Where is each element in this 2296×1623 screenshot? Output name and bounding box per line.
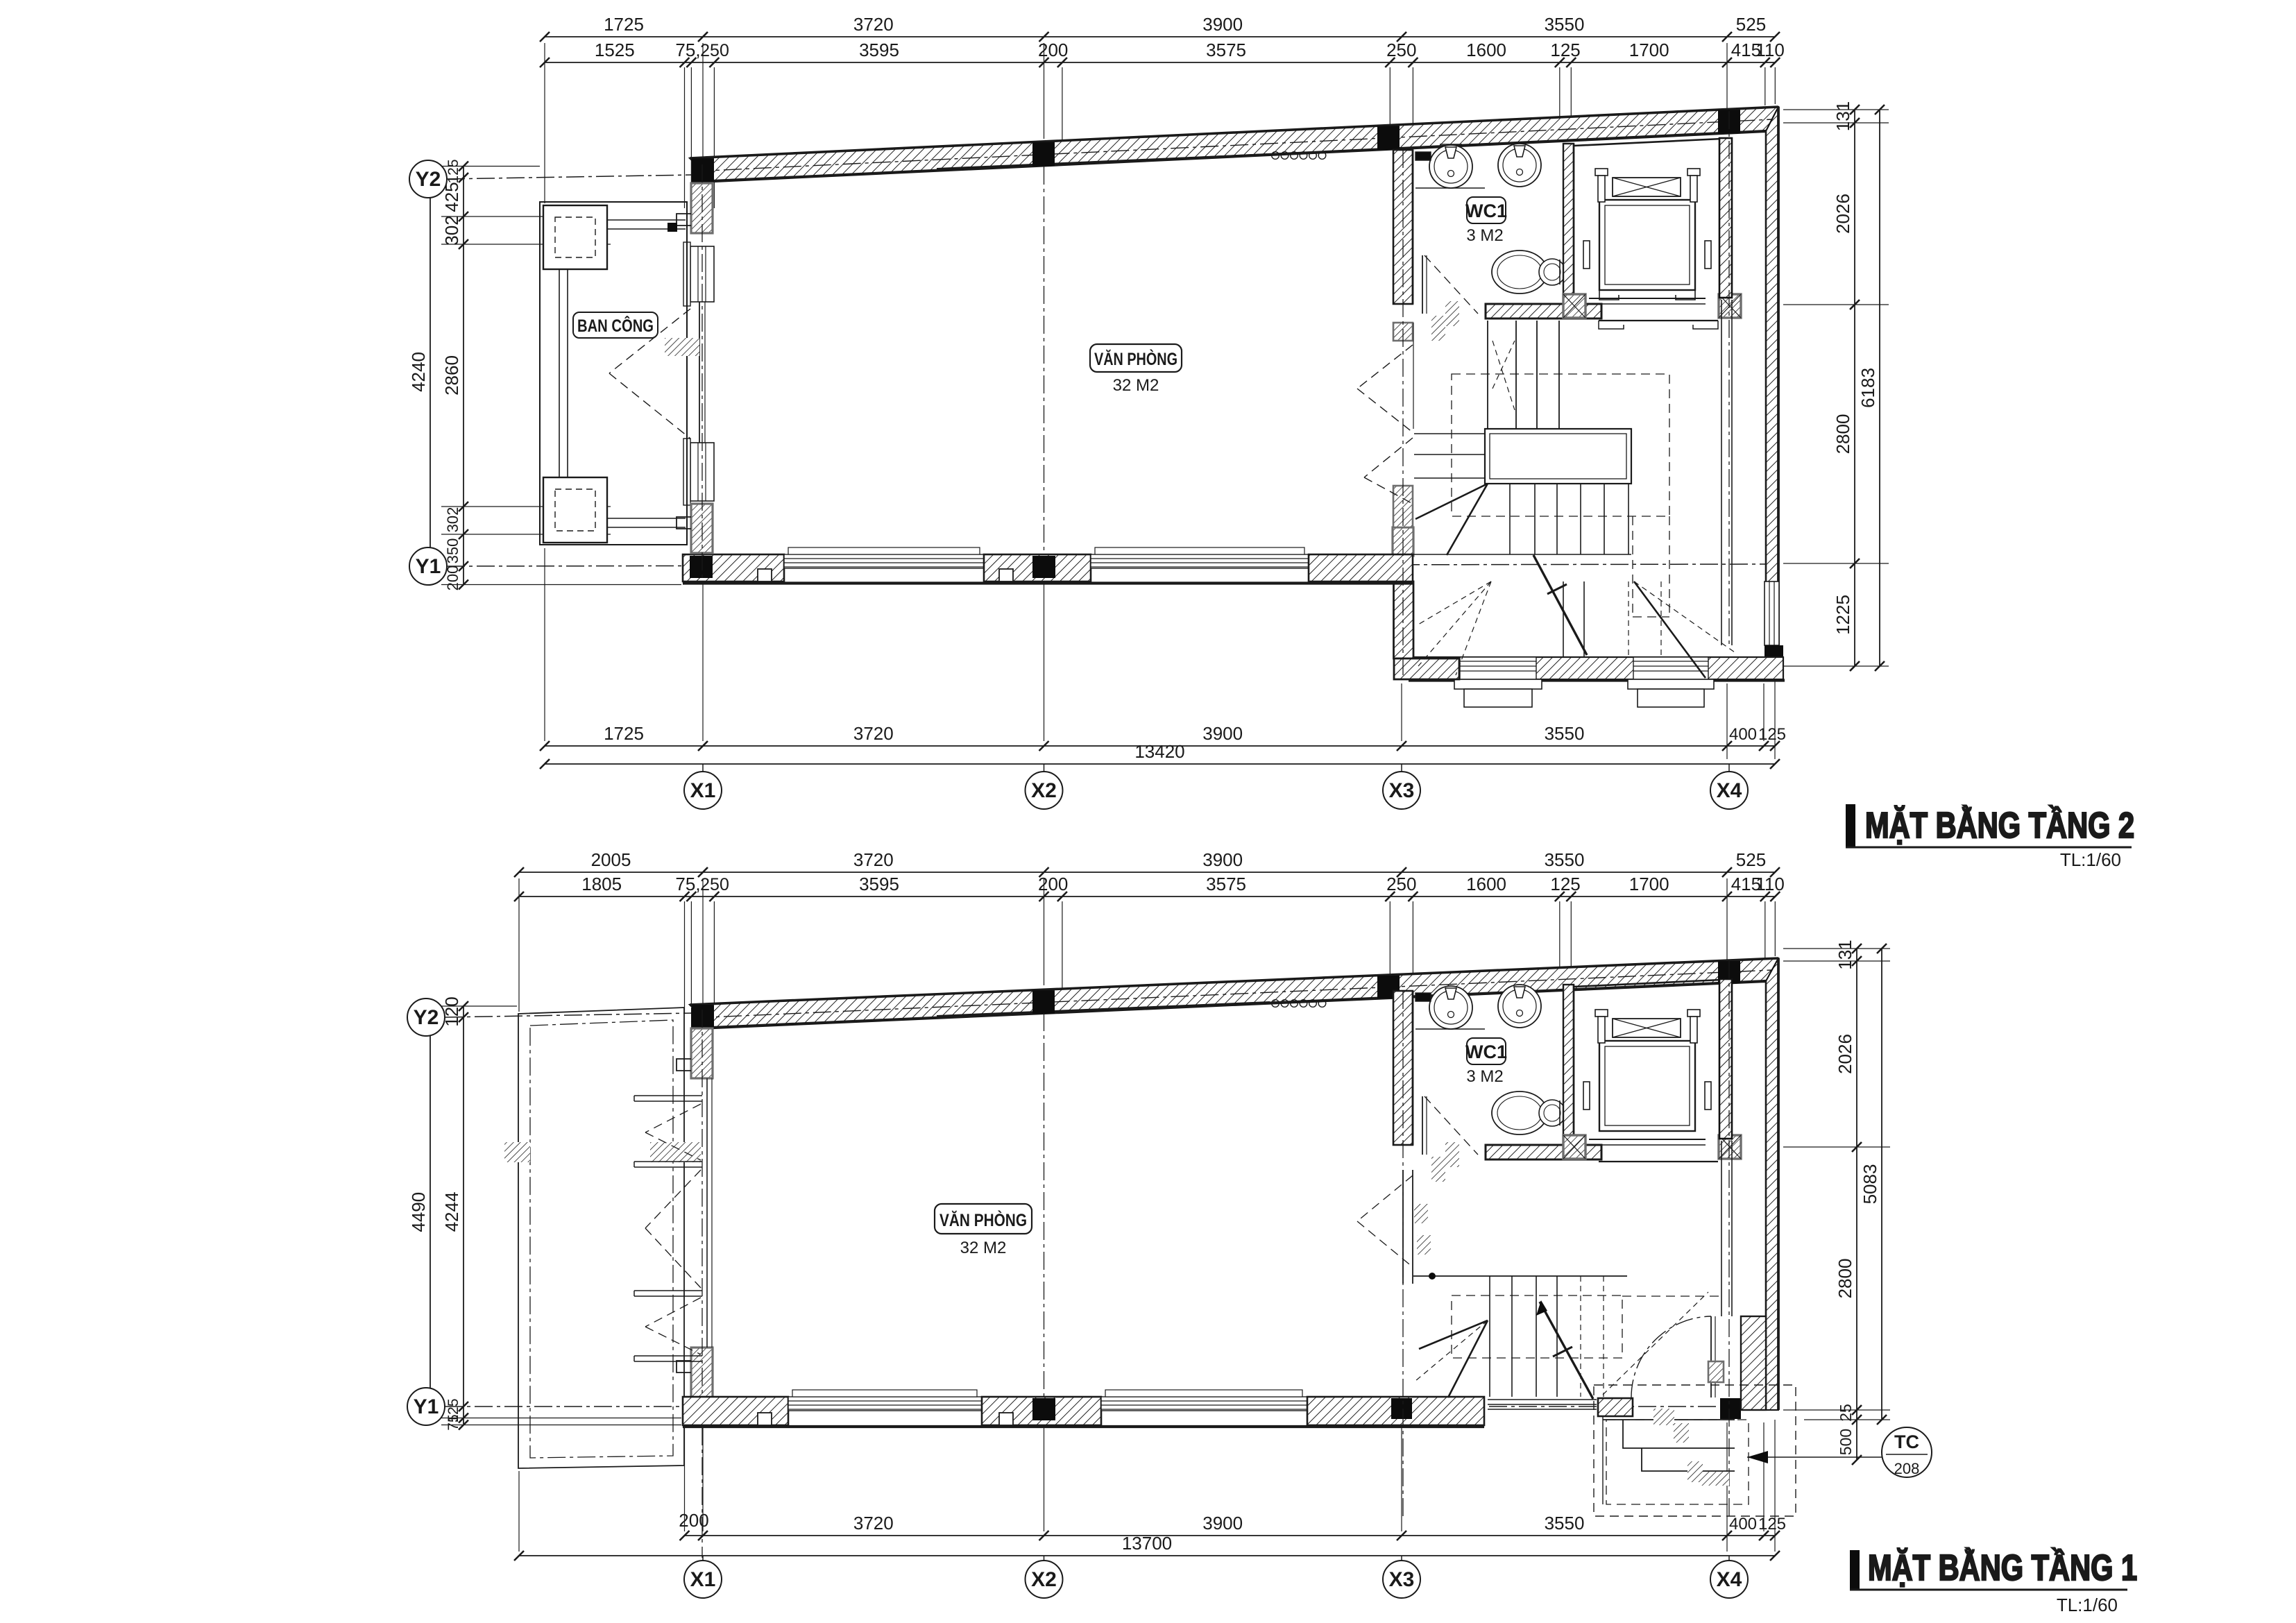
svg-text:3550: 3550 (1545, 1513, 1585, 1533)
svg-text:3720: 3720 (853, 849, 894, 870)
svg-text:BAN CÔNG: BAN CÔNG (577, 315, 654, 336)
svg-text:WC1: WC1 (1465, 1042, 1507, 1062)
svg-text:3550: 3550 (1545, 14, 1585, 35)
svg-text:3 M2: 3 M2 (1466, 1067, 1503, 1086)
svg-text:75,: 75, (675, 40, 700, 60)
svg-text:3575: 3575 (1206, 874, 1246, 894)
svg-text:X1: X1 (690, 1568, 716, 1591)
svg-text:302: 302 (444, 507, 461, 533)
svg-text:1725: 1725 (604, 723, 644, 744)
svg-text:2800: 2800 (1835, 1259, 1855, 1299)
svg-text:MẶT BẰNG TẦNG 1: MẶT BẰNG TẦNG 1 (1868, 1547, 2137, 1588)
svg-text:3900: 3900 (1202, 14, 1243, 35)
svg-text:302: 302 (441, 215, 462, 245)
svg-text:Y2: Y2 (416, 168, 441, 191)
svg-text:2026: 2026 (1832, 194, 1853, 234)
svg-text:125: 125 (1550, 874, 1580, 894)
svg-text:3 M2: 3 M2 (1466, 226, 1503, 245)
svg-text:350: 350 (444, 538, 461, 564)
svg-text:6183: 6183 (1857, 368, 1878, 408)
svg-text:200: 200 (1038, 40, 1068, 60)
svg-text:3720: 3720 (853, 1513, 894, 1533)
svg-text:75,: 75, (675, 874, 700, 894)
svg-text:525: 525 (1736, 14, 1766, 35)
svg-text:2026: 2026 (1835, 1034, 1855, 1074)
svg-text:3575: 3575 (1206, 40, 1246, 60)
svg-text:X4: X4 (1717, 779, 1742, 802)
svg-text:250: 250 (1386, 40, 1416, 60)
svg-text:125: 125 (1758, 1515, 1786, 1533)
svg-text:X2: X2 (1031, 779, 1057, 802)
svg-text:200: 200 (679, 1510, 708, 1531)
svg-text:400: 400 (1729, 1515, 1757, 1533)
svg-text:400: 400 (1729, 725, 1757, 744)
svg-text:X3: X3 (1389, 779, 1415, 802)
svg-text:3550: 3550 (1545, 849, 1585, 870)
svg-text:1600: 1600 (1466, 40, 1506, 60)
svg-text:2005: 2005 (591, 849, 631, 870)
svg-text:110: 110 (1755, 874, 1784, 894)
svg-text:Y1: Y1 (416, 555, 441, 578)
svg-text:3550: 3550 (1545, 723, 1585, 744)
svg-text:TC: TC (1894, 1431, 1919, 1452)
svg-text:Y1: Y1 (414, 1395, 439, 1418)
svg-text:4490: 4490 (408, 1192, 429, 1232)
svg-text:3720: 3720 (853, 14, 894, 35)
svg-text:525: 525 (1736, 849, 1766, 870)
svg-text:131: 131 (1832, 101, 1853, 131)
svg-text:4244: 4244 (441, 1192, 462, 1232)
svg-text:3595: 3595 (859, 874, 899, 894)
svg-text:13700: 13700 (1122, 1533, 1172, 1554)
svg-text:X4: X4 (1717, 1568, 1742, 1591)
svg-text:1525: 1525 (595, 40, 635, 60)
svg-text:125: 125 (1550, 40, 1580, 60)
svg-text:VĂN PHÒNG: VĂN PHÒNG (939, 1209, 1027, 1230)
svg-text:5083: 5083 (1860, 1164, 1880, 1205)
svg-text:1725: 1725 (604, 14, 644, 35)
svg-text:13420: 13420 (1134, 741, 1184, 762)
svg-text:3900: 3900 (1202, 723, 1243, 744)
svg-text:2800: 2800 (1832, 414, 1853, 454)
svg-text:Y2: Y2 (414, 1006, 439, 1029)
svg-text:250: 250 (700, 41, 729, 60)
svg-text:TL:1/60: TL:1/60 (2060, 849, 2121, 870)
svg-text:1700: 1700 (1629, 40, 1669, 60)
svg-text:208: 208 (1894, 1460, 1920, 1477)
svg-text:4240: 4240 (408, 352, 429, 392)
svg-text:75: 75 (445, 1414, 461, 1430)
svg-text:3900: 3900 (1202, 849, 1243, 870)
svg-text:32 M2: 32 M2 (1113, 376, 1159, 395)
svg-text:MẶT BẰNG TẦNG 2: MẶT BẰNG TẦNG 2 (1865, 805, 2134, 846)
svg-text:25: 25 (1837, 1404, 1855, 1422)
svg-text:WC1: WC1 (1465, 201, 1507, 221)
svg-text:TL:1/60: TL:1/60 (2057, 1595, 2118, 1615)
svg-text:X1: X1 (690, 779, 716, 802)
svg-text:3900: 3900 (1202, 1513, 1243, 1533)
svg-text:1805: 1805 (581, 874, 622, 894)
svg-text:2860: 2860 (441, 355, 462, 396)
svg-text:250: 250 (1386, 874, 1416, 894)
svg-text:1600: 1600 (1466, 874, 1506, 894)
svg-text:500: 500 (1837, 1429, 1855, 1455)
svg-text:125: 125 (1758, 725, 1786, 744)
svg-text:110: 110 (1755, 40, 1784, 60)
svg-text:32 M2: 32 M2 (960, 1239, 1007, 1257)
svg-text:125: 125 (445, 159, 461, 183)
svg-text:200: 200 (1038, 874, 1068, 894)
svg-text:1700: 1700 (1629, 874, 1669, 894)
svg-text:VĂN PHÒNG: VĂN PHÒNG (1094, 348, 1177, 369)
svg-text:X3: X3 (1389, 1568, 1415, 1591)
svg-text:X2: X2 (1031, 1568, 1057, 1591)
svg-text:131: 131 (1835, 940, 1855, 969)
svg-text:250: 250 (700, 875, 729, 894)
svg-text:1225: 1225 (1832, 595, 1853, 635)
svg-text:3720: 3720 (853, 723, 894, 744)
svg-text:3595: 3595 (859, 40, 899, 60)
